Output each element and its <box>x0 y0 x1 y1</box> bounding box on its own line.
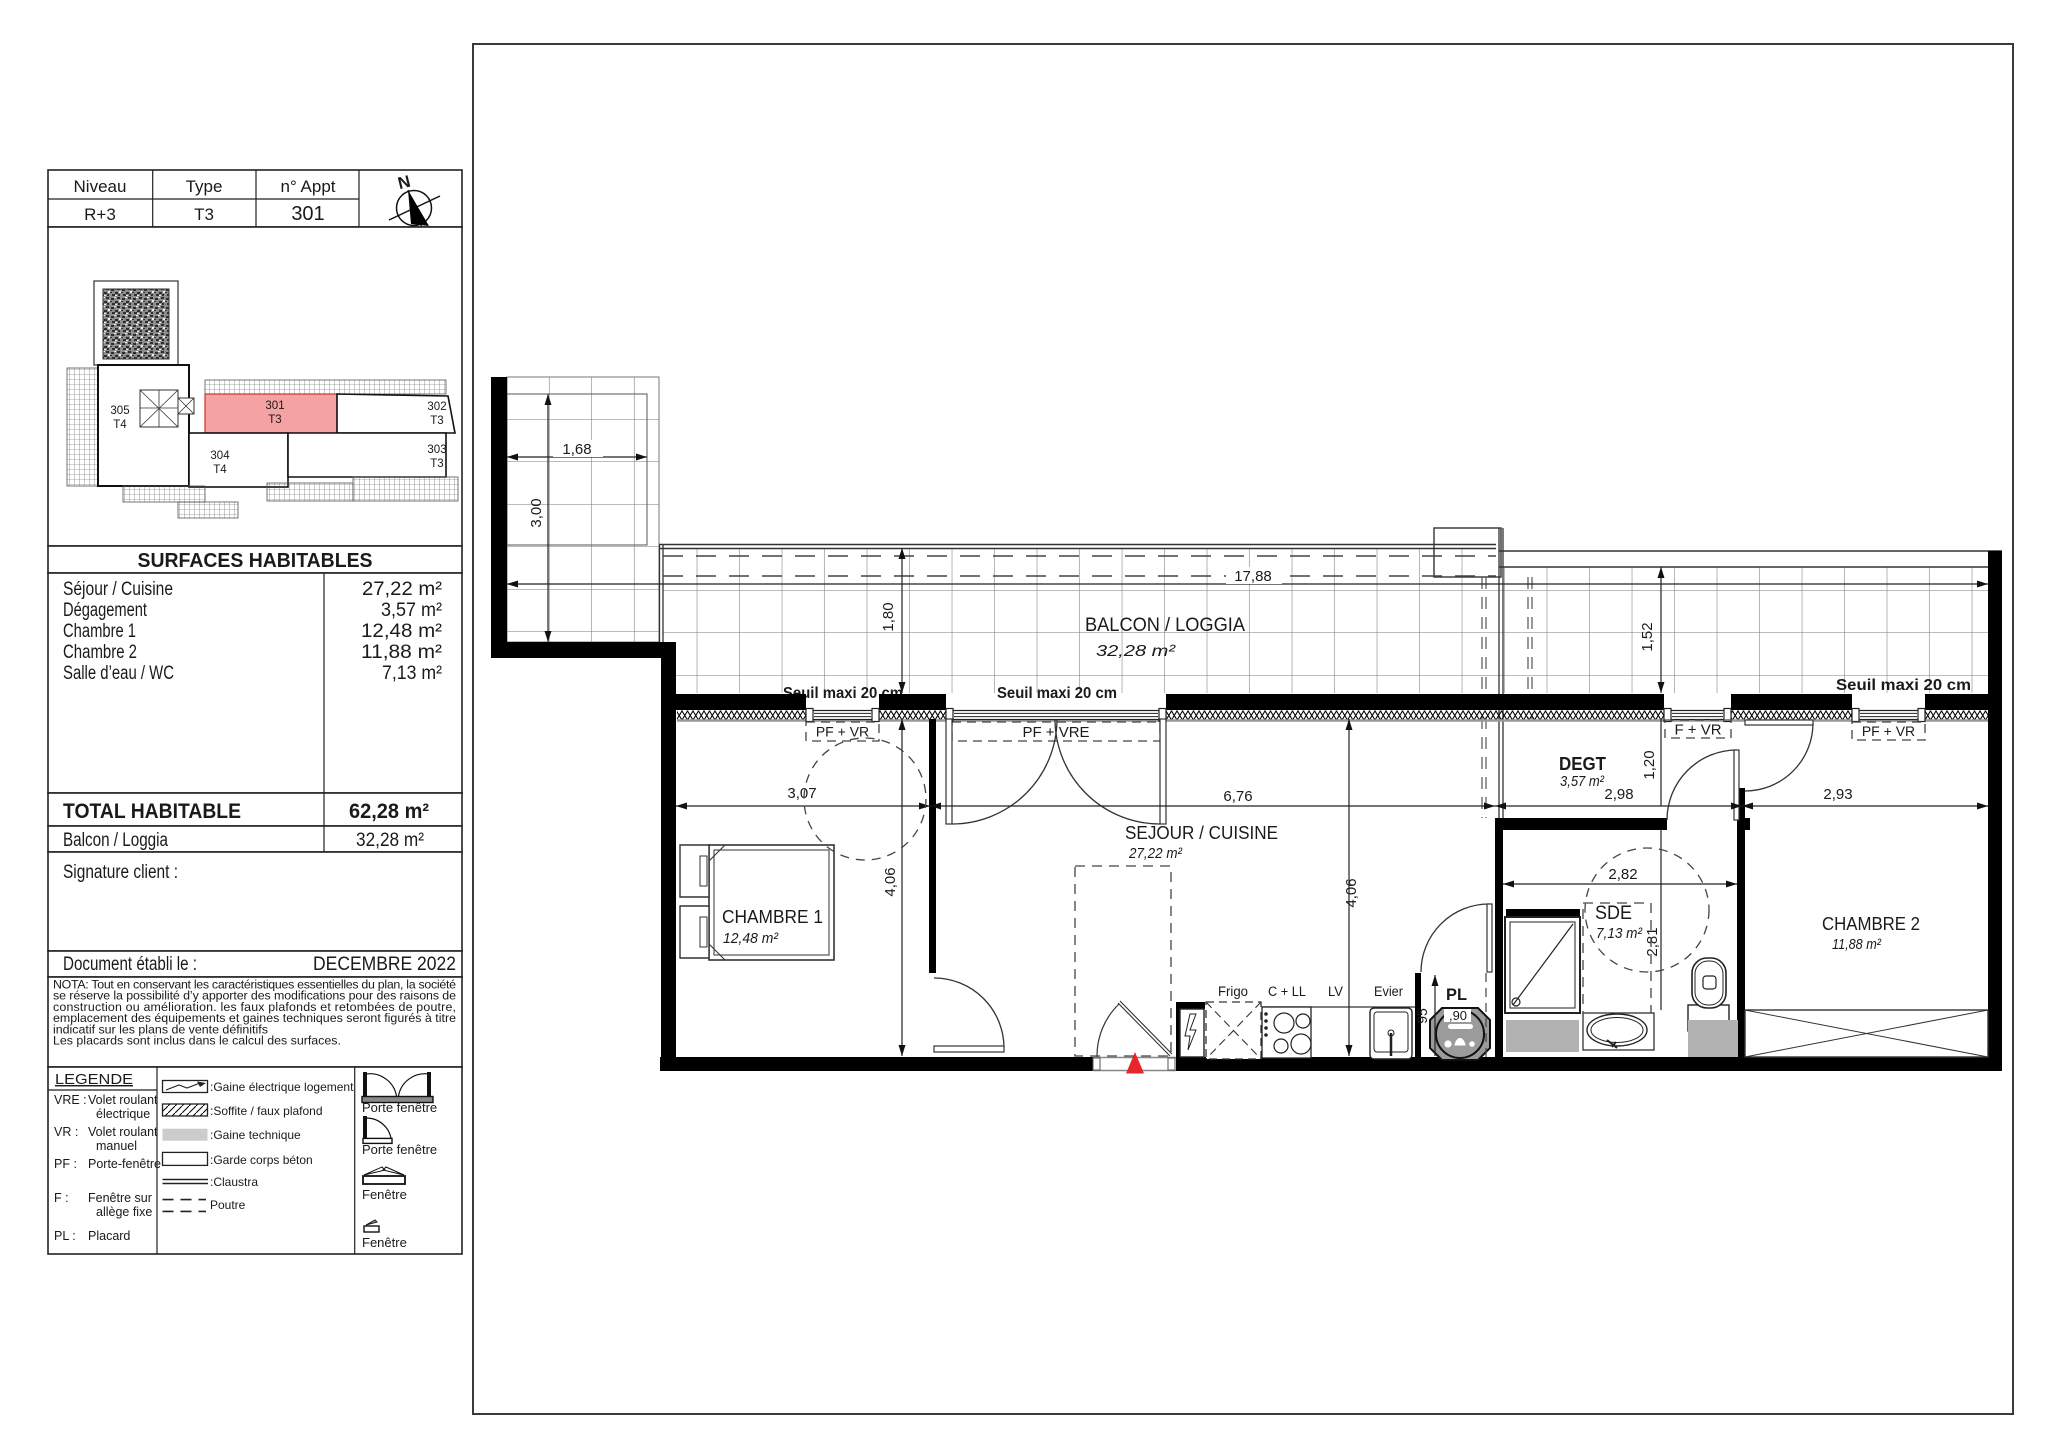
svg-text:Porte fenêtre: Porte fenêtre <box>362 1142 437 1157</box>
svg-text:CHAMBRE 1: CHAMBRE 1 <box>722 907 823 927</box>
svg-text:T4: T4 <box>213 464 227 476</box>
svg-text:Signature client :: Signature client : <box>63 862 178 883</box>
svg-text:32,28 m²: 32,28 m² <box>356 830 424 851</box>
svg-text:Seuil maxi 20 cm: Seuil maxi 20 cm <box>997 685 1117 702</box>
svg-text:R+3: R+3 <box>84 205 116 224</box>
svg-text:302: 302 <box>427 401 446 413</box>
svg-text:Poutre: Poutre <box>210 1198 246 1212</box>
svg-text:62,28 m²: 62,28 m² <box>349 800 429 823</box>
svg-text:2,81: 2,81 <box>1644 927 1661 956</box>
svg-text:3,57 m²: 3,57 m² <box>1560 773 1605 790</box>
svg-text:17,88: 17,88 <box>1234 568 1272 585</box>
svg-text:Type: Type <box>186 177 223 196</box>
svg-text:Dégagement: Dégagement <box>63 600 148 621</box>
svg-text:32,28 m²: 32,28 m² <box>1096 643 1176 660</box>
svg-text:DECEMBRE 2022: DECEMBRE 2022 <box>313 954 456 975</box>
svg-text:Séjour / Cuisine: Séjour / Cuisine <box>63 579 173 600</box>
svg-text:Document établi le :: Document établi le : <box>63 954 197 975</box>
svg-text:SEJOUR / CUISINE: SEJOUR / CUISINE <box>1125 823 1278 843</box>
svg-text:Niveau: Niveau <box>74 177 127 196</box>
svg-text:Chambre 2: Chambre 2 <box>63 642 137 663</box>
svg-text:T3: T3 <box>268 414 281 426</box>
svg-text:12,48 m²: 12,48 m² <box>361 621 442 642</box>
svg-text:T3: T3 <box>430 458 443 470</box>
svg-text:VR :Volet roulant: VR :Volet roulant <box>54 1125 158 1139</box>
svg-text:SDE: SDE <box>1595 903 1632 924</box>
svg-text:F + VR: F + VR <box>1674 721 1721 738</box>
svg-text::Soffite / faux plafond: :Soffite / faux plafond <box>210 1104 323 1118</box>
svg-text:LEGENDE: LEGENDE <box>55 1072 133 1088</box>
svg-text:27,22 m²: 27,22 m² <box>1128 845 1183 862</box>
svg-text:11,88 m²: 11,88 m² <box>1832 936 1882 953</box>
svg-text:électrique: électrique <box>96 1107 150 1121</box>
svg-text:Les placards sont inclus dans: Les placards sont inclus dans le calcul … <box>53 1034 341 1048</box>
svg-text:VRE :Volet roulant: VRE :Volet roulant <box>54 1093 158 1107</box>
svg-text:C + LL: C + LL <box>1268 984 1306 999</box>
svg-text:PF + VR: PF + VR <box>1862 723 1915 739</box>
svg-text:3,57 m²: 3,57 m² <box>381 600 442 621</box>
svg-text:304: 304 <box>210 450 230 462</box>
svg-text:CHAMBRE 2: CHAMBRE 2 <box>1822 914 1920 934</box>
svg-text:Salle d’eau / WC: Salle d’eau / WC <box>63 663 174 684</box>
svg-text:LV: LV <box>1328 984 1343 999</box>
svg-text:301: 301 <box>291 203 324 225</box>
svg-text::Gaine technique: :Gaine technique <box>210 1128 301 1142</box>
svg-text:7,13 m²: 7,13 m² <box>1596 925 1643 942</box>
svg-text:4,06: 4,06 <box>1343 878 1360 907</box>
svg-text:27,22 m²: 27,22 m² <box>362 579 442 600</box>
svg-text:3,00: 3,00 <box>528 498 545 527</box>
svg-text:1,68: 1,68 <box>562 441 591 458</box>
svg-text:305: 305 <box>110 405 129 417</box>
svg-text:allège fixe: allège fixe <box>96 1205 152 1219</box>
svg-text:303: 303 <box>427 444 446 456</box>
svg-text:Balcon / Loggia: Balcon / Loggia <box>63 830 168 851</box>
svg-text:301: 301 <box>265 400 284 412</box>
svg-text:1,52: 1,52 <box>1639 622 1656 651</box>
svg-text:12,48 m²: 12,48 m² <box>723 930 779 947</box>
svg-text:1,20: 1,20 <box>1641 750 1658 779</box>
svg-text:manuel: manuel <box>96 1139 137 1153</box>
svg-text:PL :Placard: PL :Placard <box>54 1229 130 1243</box>
svg-text:Fenêtre: Fenêtre <box>362 1235 407 1250</box>
svg-text:2,93: 2,93 <box>1823 786 1852 803</box>
svg-text:4,06: 4,06 <box>882 867 899 896</box>
svg-text:,90: ,90 <box>1449 1008 1467 1023</box>
svg-text:PF :Porte-fenêtre: PF :Porte-fenêtre <box>54 1157 161 1171</box>
svg-text:11,88 m²: 11,88 m² <box>361 642 442 663</box>
svg-text:Seuil maxi 20 cm: Seuil maxi 20 cm <box>1836 677 1971 694</box>
svg-text:7,13 m²: 7,13 m² <box>382 663 442 684</box>
svg-text:SURFACES HABITABLES: SURFACES HABITABLES <box>138 550 373 572</box>
svg-text:DEGT: DEGT <box>1559 754 1606 774</box>
svg-text::Garde corps béton: :Garde corps béton <box>210 1153 313 1167</box>
svg-text:n° Appt: n° Appt <box>280 177 335 196</box>
svg-text:TOTAL HABITABLE: TOTAL HABITABLE <box>63 800 241 823</box>
svg-text:T3: T3 <box>430 415 443 427</box>
svg-text::Claustra: :Claustra <box>210 1175 258 1189</box>
svg-text:T4: T4 <box>113 419 127 431</box>
svg-text:95: 95 <box>1414 1008 1430 1024</box>
svg-text:2,98: 2,98 <box>1604 786 1633 803</box>
svg-text:1,80: 1,80 <box>880 602 897 631</box>
svg-text:PF + VR: PF + VR <box>816 723 869 739</box>
svg-text:6,76: 6,76 <box>1223 788 1252 805</box>
svg-text:Fenêtre: Fenêtre <box>362 1187 407 1202</box>
svg-text:Frigo: Frigo <box>1218 984 1248 999</box>
svg-text:Chambre 1: Chambre 1 <box>63 621 136 642</box>
svg-text:PL: PL <box>1446 986 1467 1004</box>
svg-text:T3: T3 <box>194 205 214 224</box>
svg-text:Porte fenêtre: Porte fenêtre <box>362 1100 437 1115</box>
svg-text::Gaine électrique logement: :Gaine électrique logement <box>210 1080 354 1094</box>
svg-text:Evier: Evier <box>1374 984 1403 999</box>
svg-text:2,82: 2,82 <box>1608 866 1637 883</box>
svg-text:BALCON / LOGGIA: BALCON / LOGGIA <box>1085 615 1245 636</box>
svg-text:3,07: 3,07 <box>787 785 816 802</box>
